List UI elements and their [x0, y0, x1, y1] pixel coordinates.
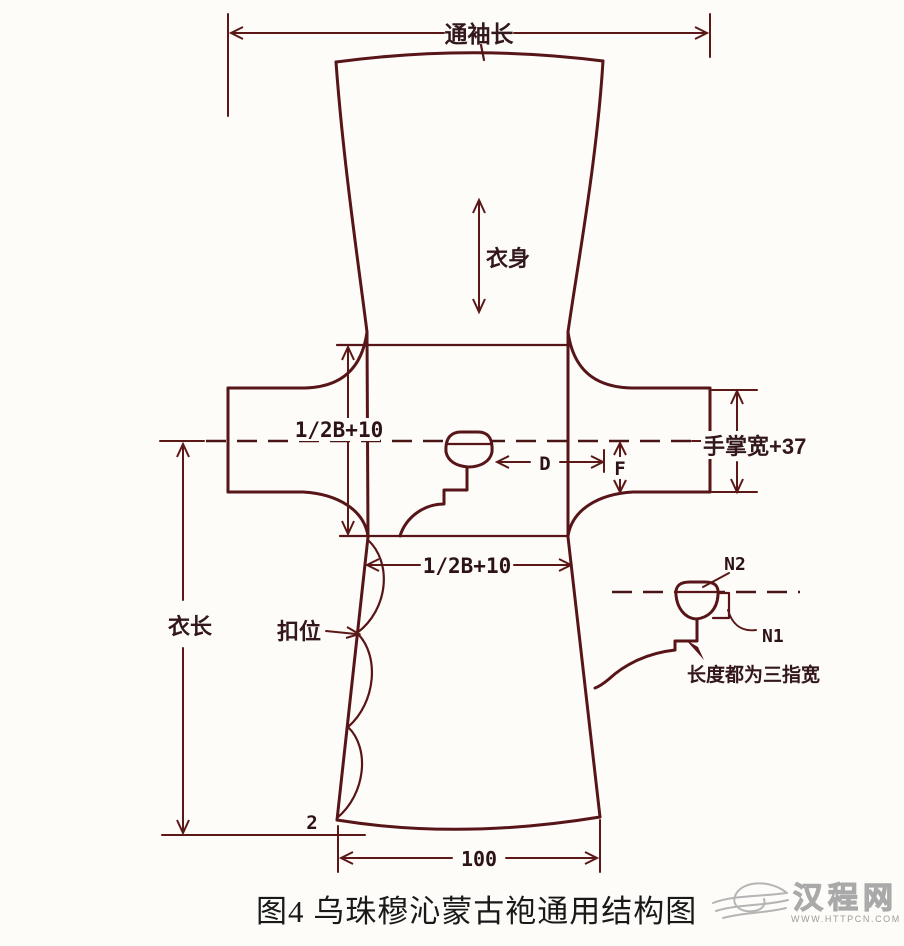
label-cuff-width: 手掌宽+37 — [703, 434, 806, 459]
pattern-diagram-page: 通袖长 衣身 1/2B+10 1/2B+10 D F 手掌宽+37 衣长 扣位 … — [0, 0, 904, 946]
label-waist-width: 1/2B+10 — [423, 554, 512, 578]
collar-knot-main — [446, 432, 492, 467]
detail-note-leader-arrow — [686, 640, 704, 660]
left-underarm-curve — [303, 492, 368, 536]
label-detail-note: 长度都为三指宽 — [687, 663, 820, 686]
label-n1: N1 — [762, 626, 784, 647]
skirt-left-edge — [337, 537, 368, 820]
watermark-logo-waves — [713, 893, 788, 918]
label-button-position: 扣位 — [277, 619, 321, 644]
watermark-site-name: 汉程网 — [793, 882, 898, 915]
bodice-left-edge — [336, 62, 367, 332]
left-sleeve-top-edge — [228, 332, 367, 388]
label-n2: N2 — [724, 554, 746, 575]
label-f-dim: F — [614, 458, 625, 480]
lapel-step-curve-main — [400, 467, 467, 536]
detail-lapel-step-curve — [595, 619, 697, 688]
shoulder-top-edge — [336, 53, 603, 62]
shoulder-center-notch — [481, 45, 484, 60]
label-d-dim: D — [539, 453, 550, 475]
button-scallop-1 — [357, 540, 384, 633]
figure-caption: 图4 乌珠穆沁蒙古袍通用结构图 — [256, 894, 697, 929]
button-position-leader — [326, 631, 356, 634]
label-garment-body: 衣身 — [486, 246, 530, 271]
label-hem-rise: 2 — [306, 812, 317, 834]
skirt-right-edge — [568, 537, 600, 817]
label-total-sleeve-length: 通袖长 — [445, 21, 515, 47]
hem-curve — [337, 817, 600, 829]
right-sleeve-top-edge — [568, 332, 710, 388]
label-garment-length: 衣长 — [168, 614, 213, 639]
label-hem-width: 100 — [461, 847, 497, 871]
n1-leader — [728, 610, 756, 630]
mongolian-robe-structure-diagram: 通袖长 衣身 1/2B+10 1/2B+10 D F 手掌宽+37 衣长 扣位 … — [0, 0, 904, 946]
right-underarm-curve — [568, 492, 633, 536]
watermark-site-url: WWW.HTTPCN.COM — [791, 914, 901, 924]
label-chest-to-waist: 1/2B+10 — [295, 418, 384, 442]
collar-knot-detail — [676, 582, 718, 619]
bodice-right-edge — [568, 61, 603, 332]
watermark: 汉程网 WWW.HTTPCN.COM — [713, 882, 901, 924]
